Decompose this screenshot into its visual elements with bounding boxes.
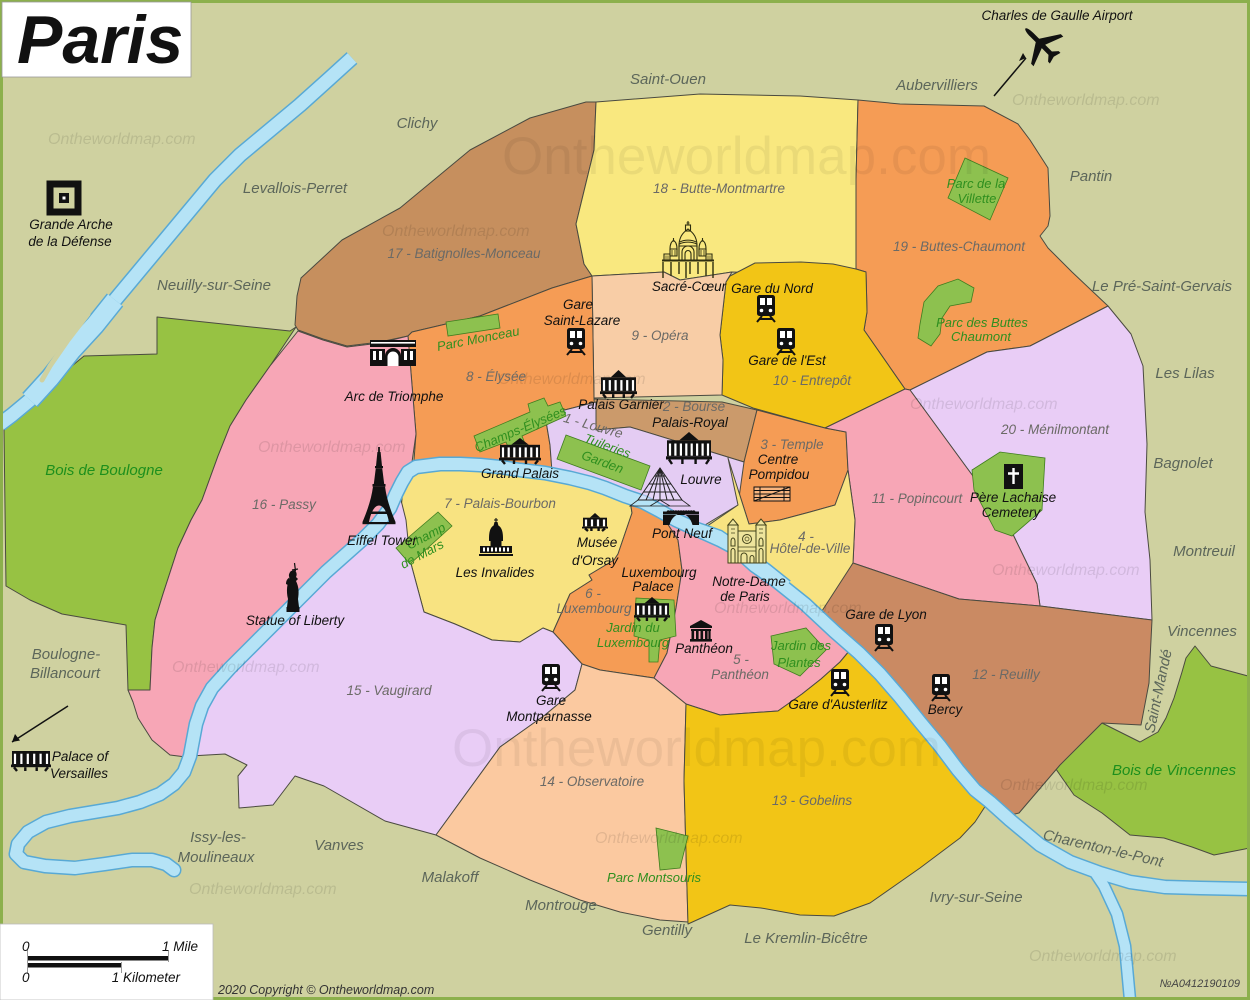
svg-text:Bois de Vincennes: Bois de Vincennes bbox=[1112, 762, 1236, 779]
svg-text:Gare du Nord: Gare du Nord bbox=[731, 281, 813, 296]
svg-text:Jardin des: Jardin des bbox=[770, 638, 831, 653]
svg-text:Musée: Musée bbox=[577, 535, 618, 550]
svg-text:Jardin du: Jardin du bbox=[605, 620, 659, 635]
svg-text:Saint-Lazare: Saint-Lazare bbox=[544, 313, 621, 328]
svg-text:Les Lilas: Les Lilas bbox=[1155, 365, 1215, 382]
svg-text:Panthéon: Panthéon bbox=[675, 641, 733, 656]
svg-text:Ontheworldmap.com: Ontheworldmap.com bbox=[382, 223, 530, 240]
svg-text:Levallois-Perret: Levallois-Perret bbox=[243, 180, 348, 197]
svg-text:Grand Palais: Grand Palais bbox=[481, 466, 559, 481]
svg-text:Notre-Dame: Notre-Dame bbox=[712, 574, 786, 589]
svg-text:Gare: Gare bbox=[536, 693, 566, 708]
svg-text:Ontheworldmap.com: Ontheworldmap.com bbox=[172, 659, 320, 676]
svg-text:Vanves: Vanves bbox=[314, 837, 364, 854]
svg-text:Ivry-sur-Seine: Ivry-sur-Seine bbox=[929, 889, 1022, 906]
svg-text:3 - Temple: 3 - Temple bbox=[760, 437, 823, 452]
svg-text:Ontheworldmap.com: Ontheworldmap.com bbox=[910, 396, 1058, 413]
svg-text:Louvre: Louvre bbox=[680, 472, 721, 487]
svg-text:11 - Popincourt: 11 - Popincourt bbox=[872, 491, 964, 506]
svg-text:Ontheworldmap.com: Ontheworldmap.com bbox=[258, 439, 406, 456]
svg-text:Luxembourg: Luxembourg bbox=[597, 635, 670, 650]
svg-text:Ontheworldmap.com: Ontheworldmap.com bbox=[595, 830, 743, 847]
svg-text:18 - Butte-Montmartre: 18 - Butte-Montmartre bbox=[653, 181, 785, 196]
svg-text:Palais-Royal: Palais-Royal bbox=[652, 415, 729, 430]
svg-text:0: 0 bbox=[22, 970, 30, 985]
svg-text:Statue of Liberty: Statue of Liberty bbox=[246, 613, 346, 628]
svg-text:Gare de l'Est: Gare de l'Est bbox=[748, 353, 827, 368]
svg-text:Ontheworldmap.com: Ontheworldmap.com bbox=[1029, 948, 1177, 965]
svg-text:Pont Neuf: Pont Neuf bbox=[652, 526, 713, 541]
svg-text:Hôtel-de-Ville: Hôtel-de-Ville bbox=[770, 541, 851, 556]
svg-text:Parc de la: Parc de la bbox=[947, 176, 1006, 191]
svg-text:Parc des Buttes: Parc des Buttes bbox=[936, 315, 1028, 330]
svg-text:№A0412190109: №A0412190109 bbox=[1160, 978, 1240, 990]
svg-text:Ontheworldmap.com: Ontheworldmap.com bbox=[189, 881, 337, 898]
svg-text:Ontheworldmap.com: Ontheworldmap.com bbox=[992, 562, 1140, 579]
svg-text:Le Kremlin-Bicêtre: Le Kremlin-Bicêtre bbox=[744, 930, 867, 947]
svg-text:Luxembourg: Luxembourg bbox=[556, 601, 632, 616]
svg-text:Bercy: Bercy bbox=[928, 702, 964, 717]
svg-text:Chaumont: Chaumont bbox=[951, 329, 1012, 344]
svg-text:15 - Vaugirard: 15 - Vaugirard bbox=[346, 683, 432, 698]
svg-text:Centre: Centre bbox=[758, 452, 799, 467]
svg-text:8 - Élysée: 8 - Élysée bbox=[466, 369, 526, 384]
svg-text:Ontheworldmap.com: Ontheworldmap.com bbox=[502, 127, 991, 186]
svg-text:2 - Bourse: 2 - Bourse bbox=[662, 399, 725, 414]
svg-text:0: 0 bbox=[22, 939, 30, 954]
svg-text:9 - Opéra: 9 - Opéra bbox=[631, 328, 689, 343]
svg-text:17 - Batignolles-Monceau: 17 - Batignolles-Monceau bbox=[387, 246, 541, 261]
svg-text:Père Lachaise: Père Lachaise bbox=[970, 490, 1056, 505]
svg-text:Le Pré-Saint-Gervais: Le Pré-Saint-Gervais bbox=[1092, 278, 1233, 295]
svg-text:16 - Passy: 16 - Passy bbox=[252, 497, 317, 512]
svg-text:Ontheworldmap.com: Ontheworldmap.com bbox=[1012, 92, 1160, 109]
svg-text:Palace: Palace bbox=[632, 579, 673, 594]
svg-text:Montparnasse: Montparnasse bbox=[506, 709, 592, 724]
svg-text:Grande Arche: Grande Arche bbox=[29, 217, 113, 232]
svg-text:Montreuil: Montreuil bbox=[1173, 543, 1235, 560]
svg-text:Arc de Triomphe: Arc de Triomphe bbox=[344, 389, 444, 404]
svg-text:Bois de Boulogne: Bois de Boulogne bbox=[45, 462, 163, 479]
svg-text:Ontheworldmap.com: Ontheworldmap.com bbox=[452, 719, 941, 778]
svg-text:Vincennes: Vincennes bbox=[1167, 623, 1237, 640]
svg-text:12 - Reuilly: 12 - Reuilly bbox=[972, 667, 1041, 682]
svg-text:10 - Entrepôt: 10 - Entrepôt bbox=[773, 373, 852, 388]
svg-text:6 -: 6 - bbox=[585, 586, 601, 601]
svg-text:Ontheworldmap.com: Ontheworldmap.com bbox=[1000, 777, 1148, 794]
svg-text:Plantes: Plantes bbox=[777, 655, 821, 670]
svg-text:Clichy: Clichy bbox=[397, 115, 439, 132]
svg-text:Ontheworldmap.com: Ontheworldmap.com bbox=[48, 131, 196, 148]
svg-text:Villette: Villette bbox=[958, 191, 997, 206]
svg-text:Neuilly-sur-Seine: Neuilly-sur-Seine bbox=[157, 277, 271, 294]
svg-text:14 - Observatoire: 14 - Observatoire bbox=[540, 774, 644, 789]
svg-text:Luxembourg: Luxembourg bbox=[621, 565, 697, 580]
svg-text:Malakoff: Malakoff bbox=[422, 869, 481, 886]
svg-text:Versailles: Versailles bbox=[50, 766, 108, 781]
svg-text:Aubervilliers: Aubervilliers bbox=[895, 77, 978, 94]
svg-text:Gentilly: Gentilly bbox=[642, 922, 694, 939]
svg-text:Gare d'Austerlitz: Gare d'Austerlitz bbox=[788, 697, 888, 712]
svg-text:Palace of: Palace of bbox=[52, 749, 110, 764]
svg-text:Les Invalides: Les Invalides bbox=[456, 565, 535, 580]
svg-text:1 Kilometer: 1 Kilometer bbox=[112, 970, 181, 985]
svg-text:Sacré-Cœur: Sacré-Cœur bbox=[652, 279, 727, 294]
svg-text:2020 Copyright © Ontheworldmap: 2020 Copyright © Ontheworldmap.com bbox=[217, 983, 434, 997]
svg-text:Montrouge: Montrouge bbox=[525, 897, 597, 914]
svg-text:Gare: Gare bbox=[563, 297, 593, 312]
svg-text:Paris: Paris bbox=[17, 2, 183, 78]
svg-text:7 - Palais-Bourbon: 7 - Palais-Bourbon bbox=[444, 496, 556, 511]
svg-text:Eiffel Tower: Eiffel Tower bbox=[347, 533, 418, 548]
svg-text:Issy-les-: Issy-les- bbox=[190, 829, 246, 846]
svg-text:Panthéon: Panthéon bbox=[711, 667, 769, 682]
svg-text:13 - Gobelins: 13 - Gobelins bbox=[772, 793, 853, 808]
svg-text:20 - Ménilmontant: 20 - Ménilmontant bbox=[1000, 422, 1110, 437]
svg-text:1 Mile: 1 Mile bbox=[162, 939, 198, 954]
svg-text:5 -: 5 - bbox=[733, 652, 749, 667]
svg-text:Pantin: Pantin bbox=[1070, 168, 1113, 185]
svg-text:Parc Montsouris: Parc Montsouris bbox=[607, 870, 701, 885]
svg-text:Charles de Gaulle Airport: Charles de Gaulle Airport bbox=[981, 8, 1133, 23]
svg-text:Billancourt: Billancourt bbox=[30, 665, 101, 682]
svg-text:d'Orsay: d'Orsay bbox=[572, 553, 619, 568]
svg-text:Pompidou: Pompidou bbox=[749, 467, 810, 482]
svg-text:Palais Garnier: Palais Garnier bbox=[578, 397, 664, 412]
svg-text:19 - Buttes-Chaumont: 19 - Buttes-Chaumont bbox=[893, 239, 1026, 254]
svg-text:Cemetery: Cemetery bbox=[982, 505, 1042, 520]
svg-text:Bagnolet: Bagnolet bbox=[1153, 455, 1213, 472]
svg-text:Boulogne-: Boulogne- bbox=[32, 646, 100, 663]
svg-text:Moulineaux: Moulineaux bbox=[178, 849, 255, 866]
svg-text:Saint-Ouen: Saint-Ouen bbox=[630, 71, 706, 88]
svg-text:Gare de Lyon: Gare de Lyon bbox=[845, 607, 927, 622]
svg-text:de la Défense: de la Défense bbox=[28, 234, 111, 249]
svg-text:de Paris: de Paris bbox=[720, 589, 770, 604]
